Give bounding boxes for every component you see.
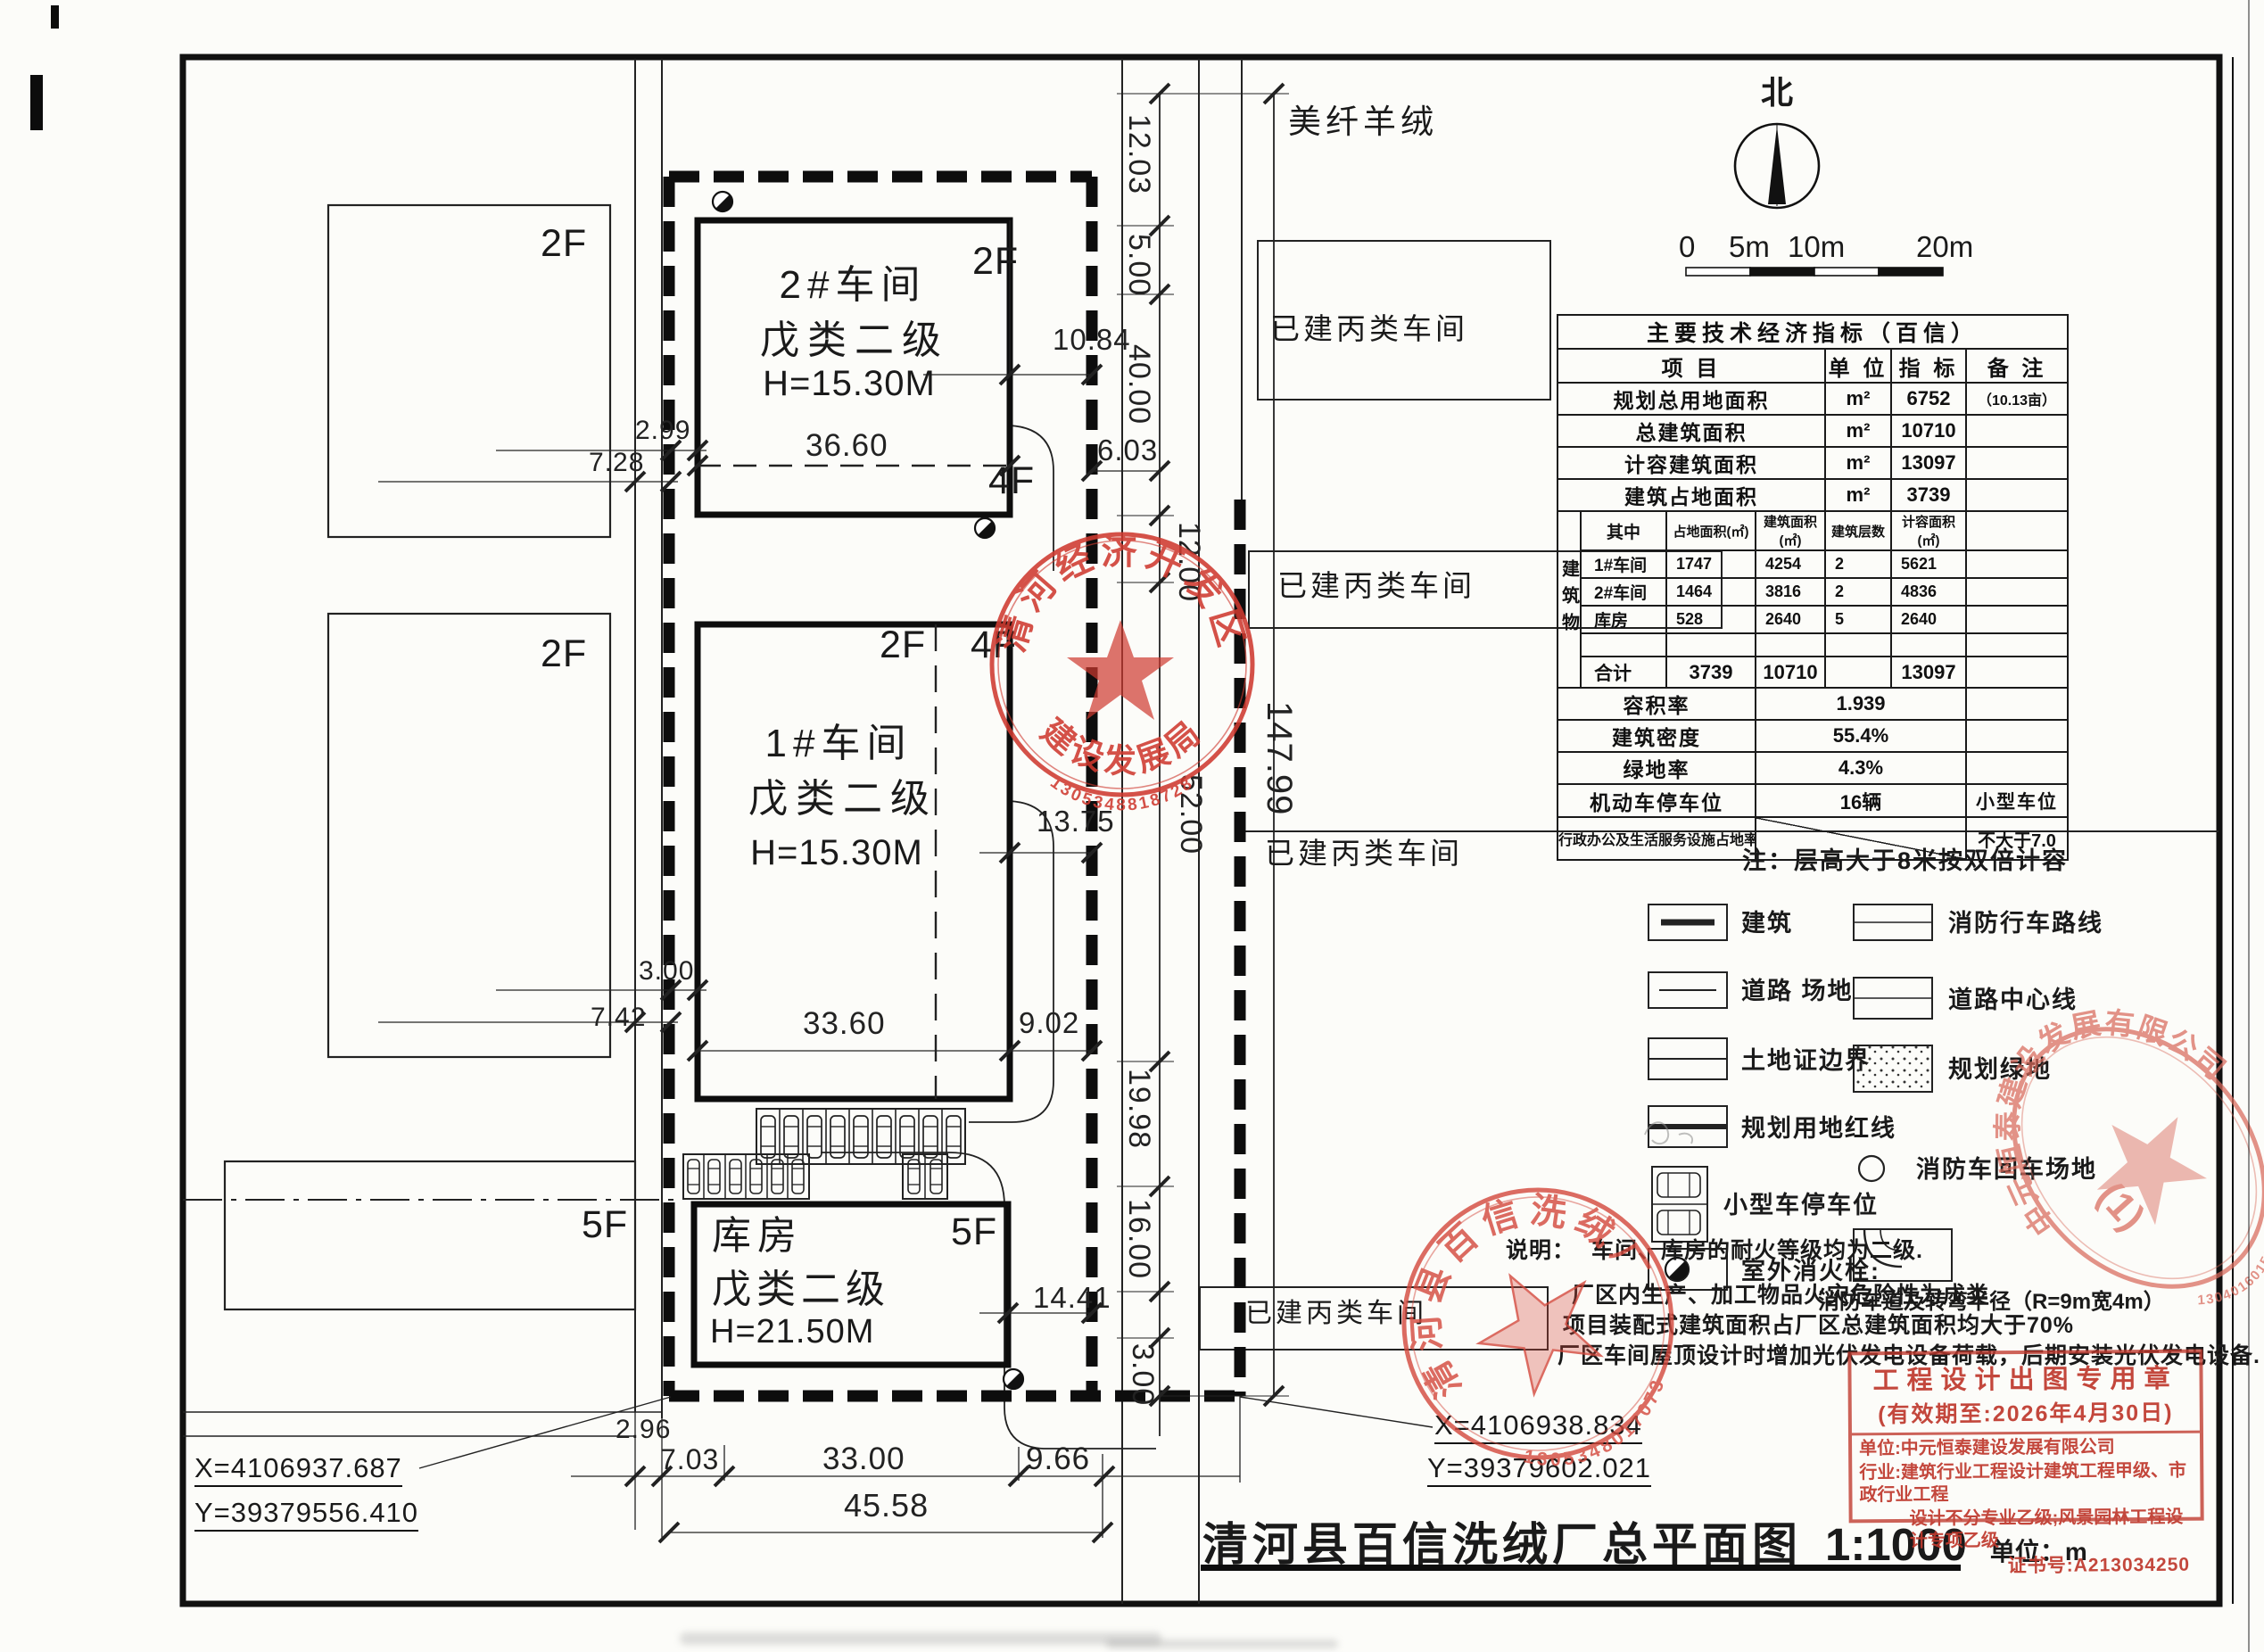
scan-bleedthrough — [680, 1632, 1161, 1645]
building-1-height: H=15.30M — [750, 835, 923, 871]
scan-edge-line — [2248, 0, 2250, 1652]
existing-workshop-label: 已建丙类车间 — [1245, 1301, 1427, 1327]
dim-label: 14.41 — [1033, 1283, 1111, 1312]
dim-label: 7.42 — [591, 1004, 646, 1031]
neighbor-label: 美纤羊绒 — [1288, 105, 1438, 138]
dim-label: 6.03 — [1097, 435, 1158, 465]
dim-label: 13.75 — [1037, 806, 1115, 836]
building-2-class: 戊类二级 — [760, 321, 949, 360]
notes-line-2: 厂区内生产、加工物品火灾危险性为戊类. — [1572, 1284, 1996, 1307]
scalebar-5m: 5m — [1729, 232, 1770, 261]
dim-label: 33.00 — [822, 1443, 905, 1474]
scan-artifact — [30, 75, 43, 130]
dim-label: 9.66 — [1026, 1443, 1090, 1474]
dim-label: 3.00 — [639, 958, 694, 985]
floor-label: 4F — [988, 462, 1035, 500]
title-text: 清河县百信洗绒厂总平面图 — [1202, 1519, 1802, 1570]
legend-red-line: 规划用地红线 — [1741, 1117, 1896, 1141]
legend-fire-turnaround: 消防车回车场地 — [1916, 1158, 2097, 1182]
stamp-box-validity: (有效期至:2026年4月30日) — [1852, 1395, 2200, 1436]
legend-parking: 小型车停车位 — [1723, 1194, 1879, 1218]
table-title: 主要技术经济指标（百信） — [1558, 315, 2068, 349]
warehouse-name: 库房 — [712, 1217, 803, 1256]
dim-label: 7.28 — [589, 450, 644, 476]
dim-label: 36.60 — [806, 430, 888, 461]
existing-buildings-west — [225, 205, 635, 1309]
north-arrow — [1735, 124, 1819, 208]
floor-label: 2F — [541, 225, 587, 263]
building-2-name: 2#车间 — [780, 266, 927, 305]
stamp-box-cert: 证书号:A213034250 — [1853, 1550, 2201, 1580]
scalebar-20m: 20m — [1916, 232, 1973, 261]
stamp-box-industry-2: 设计不分专业乙级;风景园林工程设计专项乙级 — [1853, 1504, 2201, 1553]
notes-line-3: 项目装配式建筑面积占厂区总建筑面积均大于70% — [1563, 1315, 2074, 1337]
notes-label: 说明： — [1506, 1238, 1575, 1263]
existing-workshop-label: 已建丙类车间 — [1270, 314, 1468, 343]
table-footnote: 注：层高大于8米按双倍计容 — [1641, 849, 2068, 873]
scalebar-0: 0 — [1679, 232, 1695, 261]
floor-label: 5F — [582, 1206, 628, 1244]
legend-planned-green: 规划绿地 — [1948, 1058, 2052, 1082]
building-1-class: 戊类二级 — [748, 780, 938, 819]
site-plan-sheet: 美纤羊绒 已建丙类车间 已建丙类车间 已建丙类车间 已建丙类车间 2F 2F 5… — [0, 0, 2264, 1652]
dim-label: 2.99 — [635, 417, 690, 444]
dim-label: 19.98 — [1124, 1069, 1154, 1149]
coordinate-x2: X=4106938.834 — [1434, 1411, 1642, 1444]
legend-symbols — [1648, 904, 1952, 1290]
floor-label: 4F — [971, 626, 1017, 665]
stamp-box-unit: 单位:中元恒泰建设发展有限公司 — [1852, 1433, 2200, 1460]
coordinate-y1: Y=39379556.410 — [194, 1499, 418, 1532]
building-1-name: 1#车间 — [765, 724, 913, 764]
table-group-label: 建筑物 — [1558, 511, 1581, 688]
stamp-box-industry-1: 行业:建筑行业工程设计建筑工程甲级、市政行业工程 — [1852, 1458, 2200, 1507]
dim-label: 9.02 — [1019, 1008, 1079, 1037]
legend-road-centerline: 道路中心线 — [1948, 988, 2078, 1012]
stamp-release-box: 工程设计出图专用章 (有效期至:2026年4月30日) 单位:中元恒泰建设发展有… — [1847, 1350, 2203, 1524]
parking-row-2 — [683, 1154, 809, 1199]
legend-fire-route: 消防行车路线 — [1948, 912, 2103, 936]
north-label: 北 — [1761, 77, 1793, 109]
scan-bleedthrough — [1106, 1640, 1338, 1648]
dim-label-total: 147.99 — [1261, 701, 1297, 815]
floor-label: 5F — [951, 1213, 997, 1251]
existing-workshop-label: 已建丙类车间 — [1277, 571, 1475, 600]
building-2-height: H=15.30M — [763, 366, 936, 401]
floor-label: 2F — [972, 243, 1019, 281]
dim-label: 40.00 — [1124, 344, 1154, 425]
dim-label: 7.03 — [660, 1445, 719, 1474]
floor-label: 2F — [541, 635, 587, 673]
dim-label: 12.00 — [1174, 522, 1204, 602]
existing-workshop-label: 已建丙类车间 — [1265, 838, 1463, 868]
legend-building: 建筑 — [1741, 912, 1793, 936]
dim-label: 2.96 — [616, 1417, 671, 1443]
dim-label: 33.60 — [803, 1008, 886, 1039]
legend-land-boundary: 土地证边界 — [1741, 1049, 1871, 1073]
warehouse-class: 戊类二级 — [712, 1270, 890, 1309]
scan-artifact — [51, 5, 59, 29]
dim-label: 3.00 — [1128, 1343, 1158, 1406]
dim-label: 52.00 — [1176, 774, 1206, 855]
warehouse-height: H=21.50M — [710, 1315, 874, 1349]
floor-label: 2F — [880, 626, 926, 665]
dim-label: 16.00 — [1124, 1199, 1154, 1279]
scale-bar — [1686, 268, 1943, 276]
notes-line-1: 说明： 车间、库房的耐火等级均为二级. — [1506, 1240, 1923, 1262]
coordinate-x1: X=4106937.687 — [194, 1454, 402, 1487]
coordinate-y2: Y=39379602.021 — [1427, 1454, 1651, 1487]
legend-road: 道路 场地 — [1741, 979, 1854, 1004]
economic-indicators-table: 主要技术经济指标（百信） 项 目 单 位 指 标 备 注 规划总用地面积 m²6… — [1557, 314, 2069, 861]
title-underline — [1201, 1565, 1961, 1571]
dim-label: 5.00 — [1124, 234, 1154, 296]
scalebar-10m: 10m — [1788, 232, 1845, 261]
dim-label: 12.03 — [1124, 114, 1154, 194]
dim-label: 10.84 — [1053, 325, 1131, 354]
legend-hydrant: 室外消火栓: — [1741, 1260, 1880, 1284]
stamp-box-title: 工程设计出图专用章 — [1851, 1358, 2199, 1398]
dim-label: 45.58 — [844, 1490, 929, 1522]
